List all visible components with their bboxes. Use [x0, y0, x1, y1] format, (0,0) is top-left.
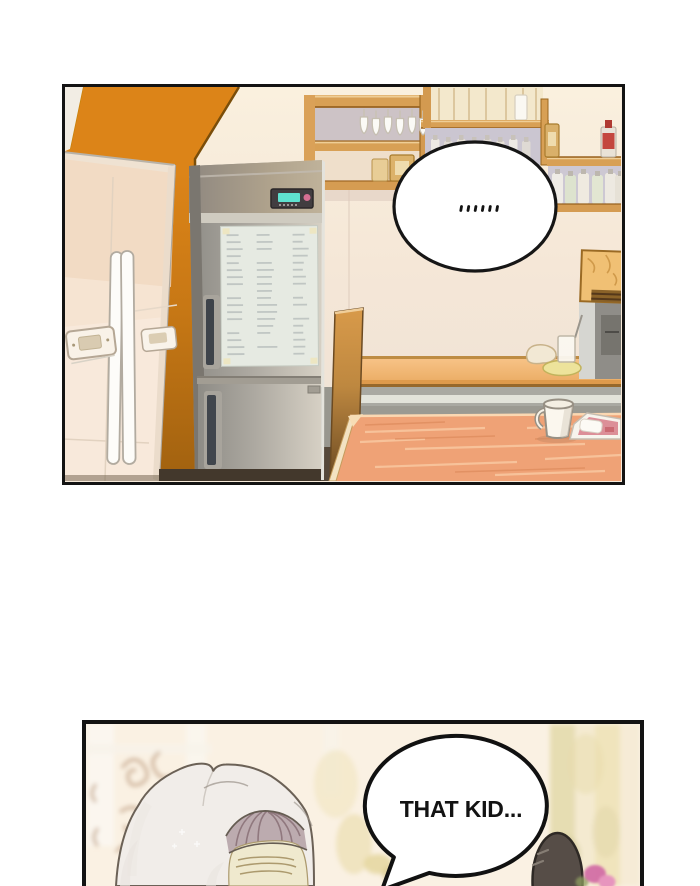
svg-text:THAT KID...: THAT KID... [400, 796, 523, 822]
